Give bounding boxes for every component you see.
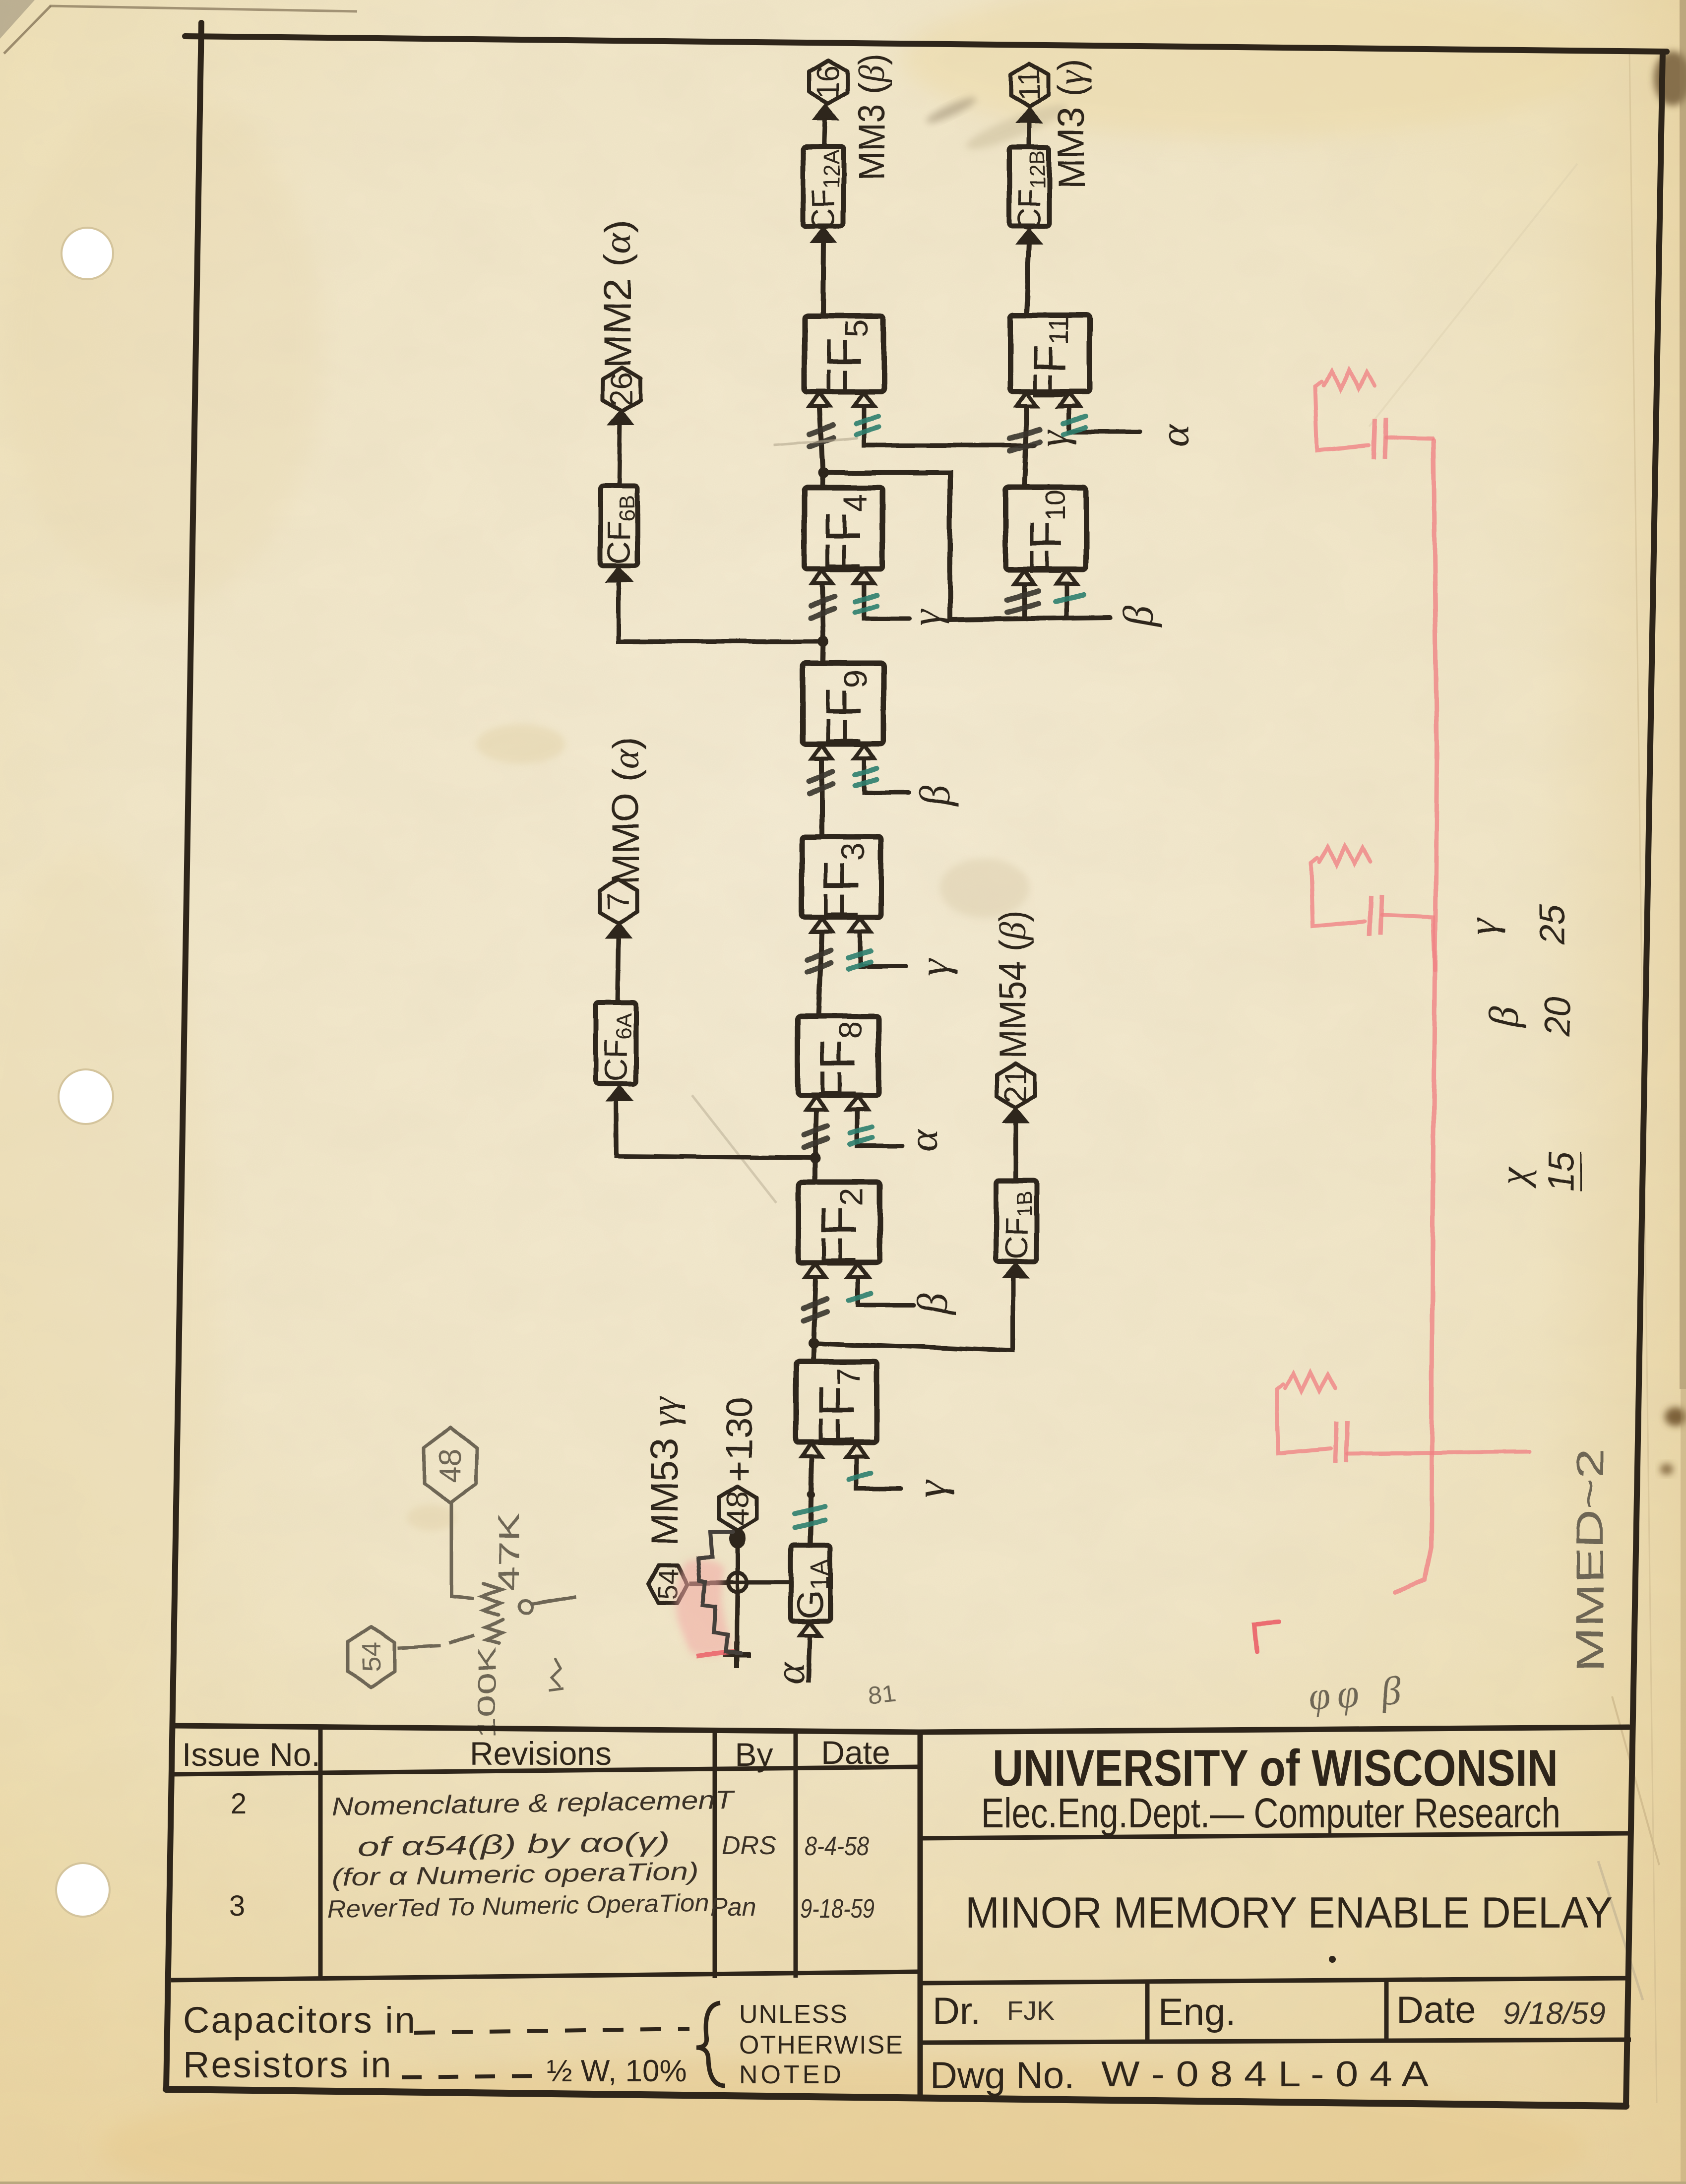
- svg-text:β: β: [909, 1293, 956, 1315]
- svg-text:MM53 γγ: MM53 γγ: [644, 1396, 686, 1546]
- svg-text:By: By: [735, 1736, 773, 1773]
- svg-text:9/18/59: 9/18/59: [1503, 1997, 1606, 2031]
- svg-text:α: α: [899, 1129, 946, 1152]
- svg-text:γ: γ: [1459, 918, 1505, 935]
- svg-text:MMO (α): MMO (α): [605, 737, 647, 885]
- svg-text:MM54 (β): MM54 (β): [992, 910, 1034, 1059]
- svg-text:γ: γ: [907, 1479, 954, 1497]
- svg-text:Revisions: Revisions: [470, 1735, 612, 1772]
- svg-text:MM3 (β): MM3 (β): [851, 54, 893, 181]
- svg-text:MINOR MEMORY ENABLE DELAY: MINOR MEMORY ENABLE DELAY: [965, 1888, 1613, 1937]
- svg-text:γ: γ: [910, 959, 957, 977]
- svg-text:48: 48: [721, 1492, 755, 1526]
- svg-text:100K: 100K: [473, 1646, 501, 1738]
- svg-text:½ W, 10%: ½ W, 10%: [547, 2054, 687, 2088]
- svg-text:Issue No.: Issue No.: [182, 1736, 320, 1773]
- svg-text:20: 20: [1538, 997, 1577, 1037]
- svg-text:21: 21: [999, 1068, 1033, 1103]
- svg-text:Eng.: Eng.: [1158, 1991, 1236, 2033]
- svg-text:NOTED: NOTED: [739, 2060, 844, 2089]
- svg-text:β: β: [911, 785, 958, 807]
- svg-text:Pan: Pan: [710, 1893, 756, 1922]
- svg-text:7: 7: [602, 893, 636, 910]
- svg-text:UNIVERSITY of WISCONSIN: UNIVERSITY of WISCONSIN: [993, 1740, 1558, 1797]
- svg-text:α: α: [1151, 424, 1198, 447]
- svg-text:of α54(β) by αo(γ): of α54(β) by αo(γ): [357, 1827, 670, 1862]
- svg-text:β: β: [1115, 605, 1162, 627]
- svg-text:15: 15: [1542, 1151, 1581, 1191]
- svg-text:φφ β: φφ β: [1307, 1668, 1409, 1718]
- svg-text:γ: γ: [902, 608, 949, 626]
- svg-text:Dwg No.: Dwg No.: [930, 2055, 1074, 2097]
- svg-text:11: 11: [1012, 69, 1047, 101]
- svg-text:+130: +130: [719, 1397, 761, 1482]
- svg-text:Elec.Eng.Dept.— Computer Resea: Elec.Eng.Dept.— Computer Research: [981, 1790, 1561, 1836]
- svg-text:81: 81: [867, 1679, 897, 1710]
- svg-text:2: 2: [231, 1788, 247, 1820]
- svg-text:MM3 (γ): MM3 (γ): [1051, 58, 1093, 189]
- svg-text:UNLESS: UNLESS: [739, 2000, 848, 2029]
- svg-text:DRS: DRS: [722, 1831, 776, 1860]
- svg-text:MM2 (α): MM2 (α): [597, 219, 639, 368]
- svg-text:16: 16: [812, 65, 846, 99]
- svg-text:3: 3: [229, 1890, 245, 1922]
- svg-text:Capacitors in: Capacitors in: [183, 1999, 417, 2041]
- svg-text:26: 26: [605, 373, 639, 407]
- svg-text:25: 25: [1533, 904, 1572, 945]
- svg-text:W - 0 8 4 L - 0 4 A: W - 0 8 4 L - 0 4 A: [1101, 2055, 1429, 2094]
- svg-text:Resistors in: Resistors in: [183, 2044, 393, 2085]
- svg-text:9-18-59: 9-18-59: [800, 1894, 874, 1924]
- svg-text:χ: χ: [1491, 1165, 1537, 1188]
- svg-text:54: 54: [356, 1641, 387, 1672]
- svg-text:8-4-58: 8-4-58: [805, 1831, 869, 1861]
- svg-text:Date: Date: [1396, 1989, 1476, 2031]
- svg-text:47K: 47K: [493, 1512, 525, 1591]
- svg-text:Date: Date: [821, 1734, 890, 1771]
- svg-text:OTHERWISE: OTHERWISE: [739, 2031, 904, 2059]
- svg-text:MMED~2: MMED~2: [1568, 1449, 1612, 1672]
- svg-text:β: β: [1481, 1006, 1527, 1028]
- svg-text:α: α: [766, 1662, 813, 1685]
- svg-text:48: 48: [434, 1449, 468, 1483]
- svg-text:FJK: FJK: [1007, 1996, 1055, 2026]
- svg-text:Dr.: Dr.: [933, 1990, 981, 2032]
